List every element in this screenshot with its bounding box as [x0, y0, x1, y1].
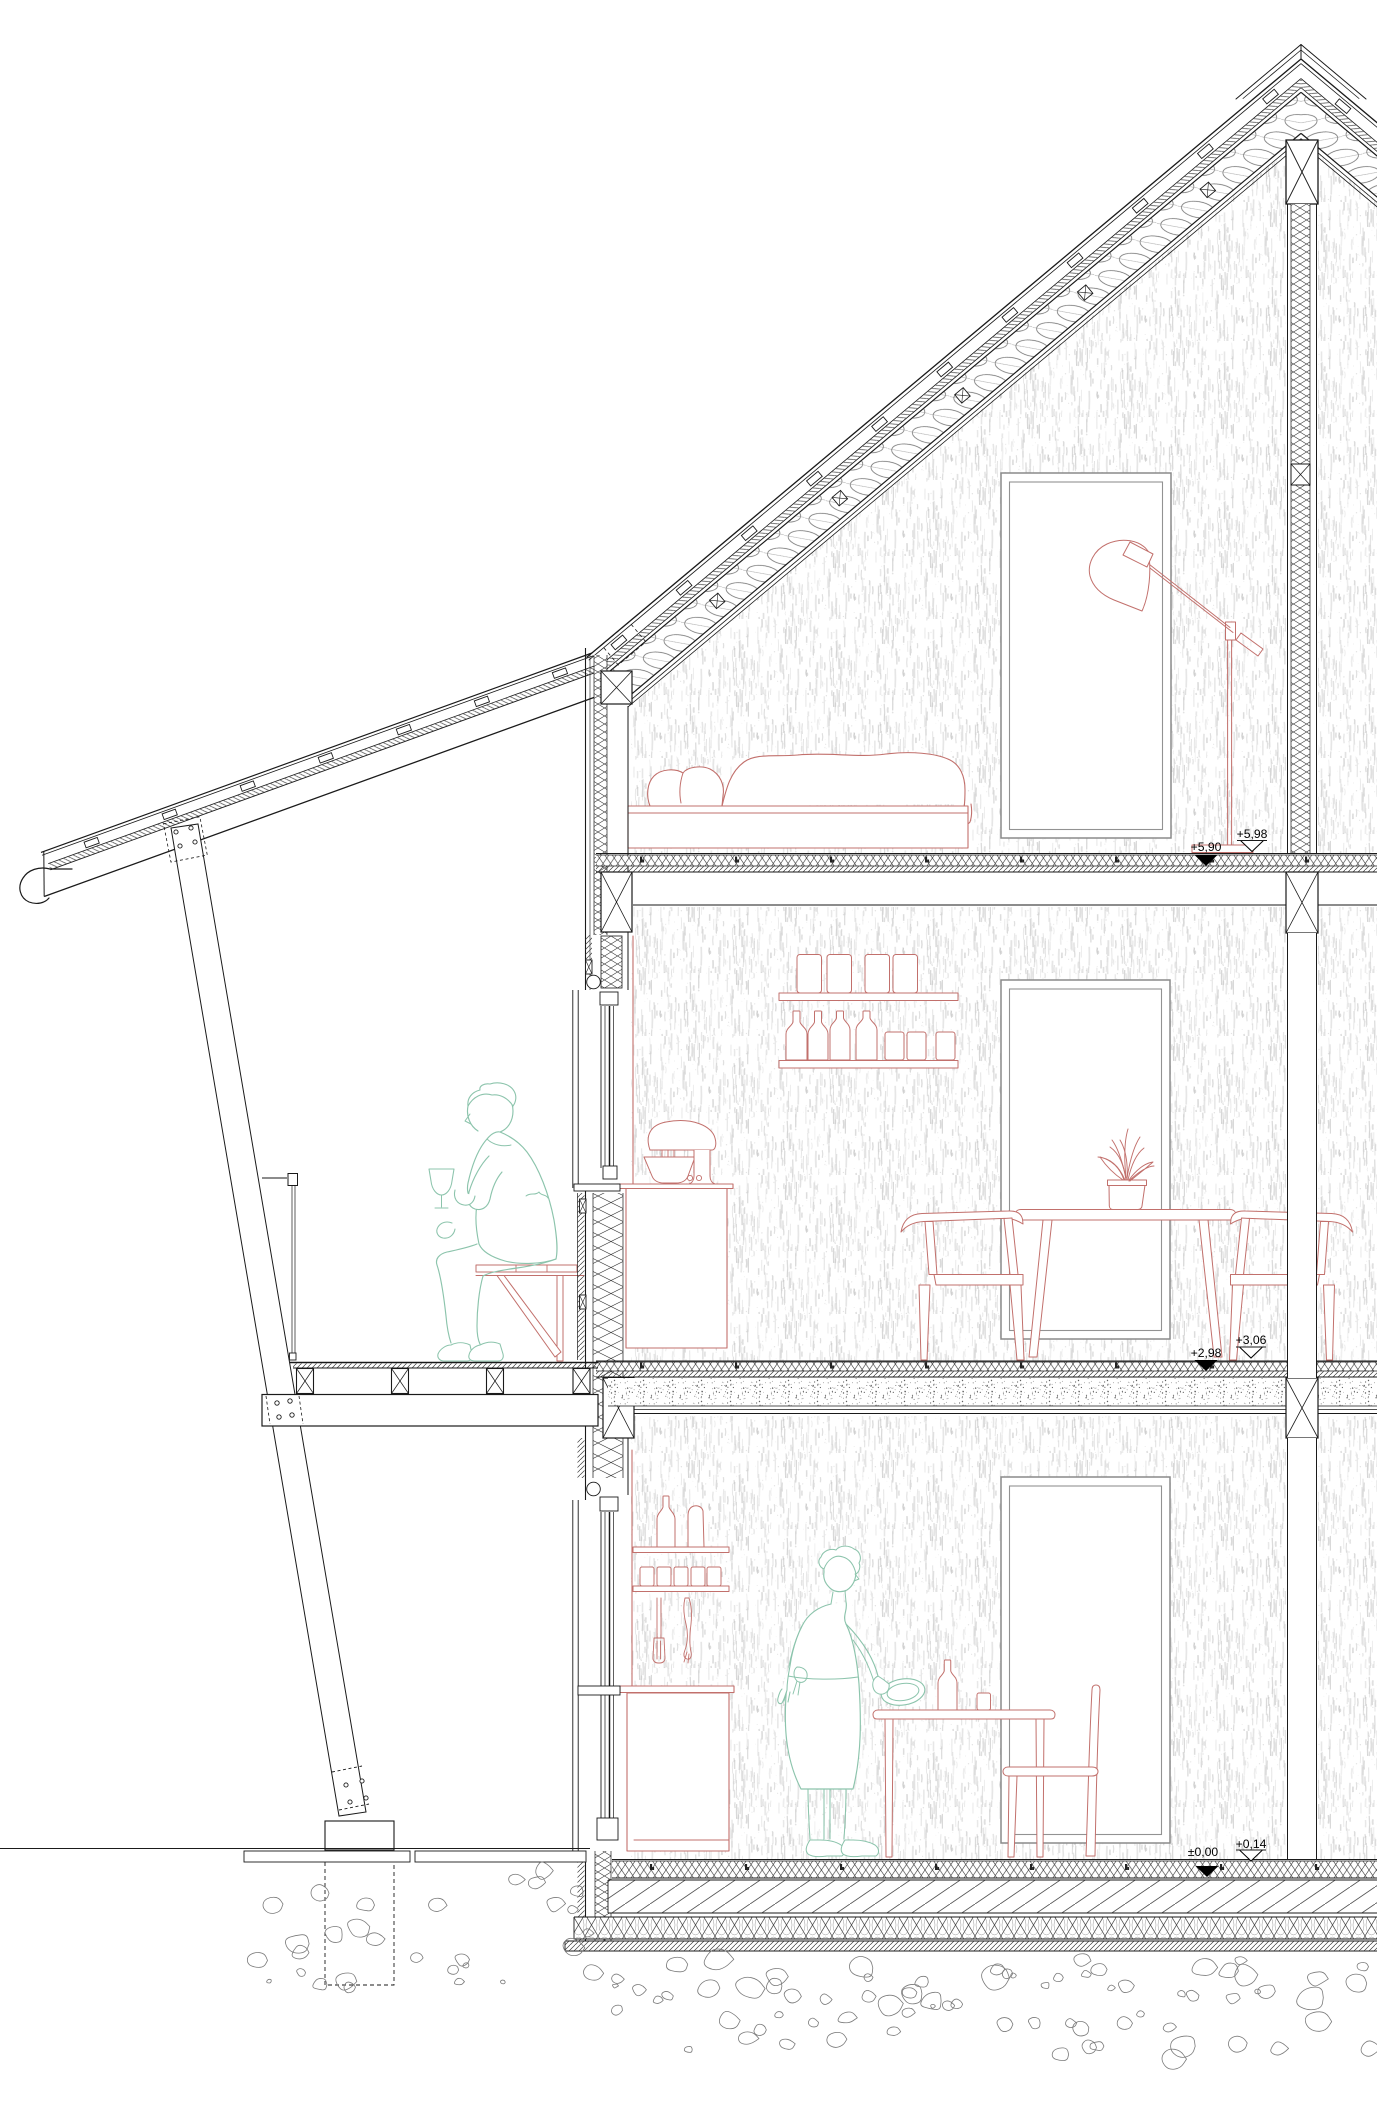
svg-text:+5,90: +5,90 [1191, 840, 1222, 854]
svg-text:±0,00: ±0,00 [1188, 1845, 1219, 1859]
svg-text:+3,06: +3,06 [1236, 1333, 1267, 1347]
svg-text:+5,98: +5,98 [1237, 827, 1268, 841]
svg-text:+0,14: +0,14 [1236, 1837, 1267, 1851]
svg-text:+2,98: +2,98 [1191, 1346, 1222, 1360]
